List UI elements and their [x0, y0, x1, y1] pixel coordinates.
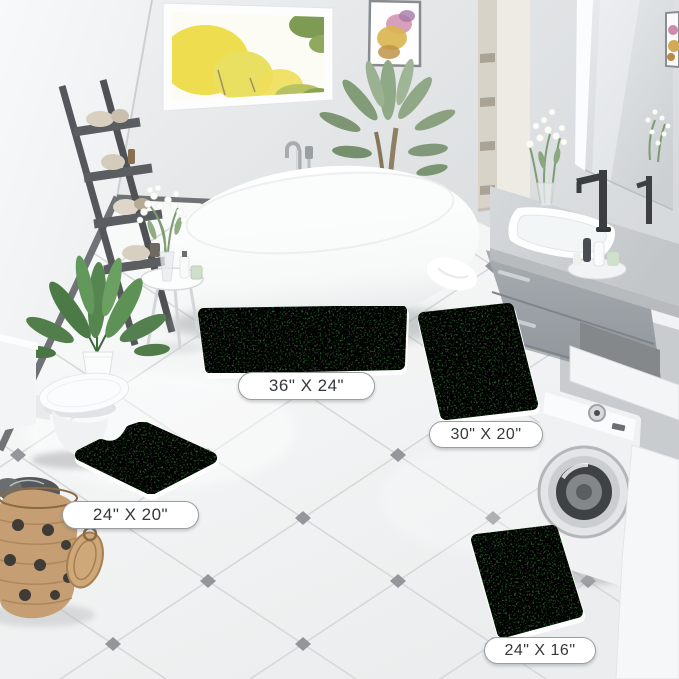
rug-36x24 [204, 311, 404, 376]
vase [160, 252, 174, 281]
size-label-24x20: 24" X 20" [62, 501, 199, 529]
bathroom-scene [0, 0, 679, 679]
rug-30x20 [424, 309, 534, 419]
wall-art-frame [369, 1, 420, 66]
bathroom-product-photo: 36" X 24" 30" X 20" 24" X 20" 24" X 16" [0, 0, 679, 679]
tall-cabinet [478, 0, 530, 212]
washer-door [539, 447, 629, 537]
size-label-24x16: 24" X 16" [484, 637, 596, 664]
rug-36x24-surface [204, 311, 401, 368]
rug-30x20-surface [424, 309, 532, 414]
hand-shower [305, 146, 313, 159]
size-label-30x20: 30" X 20" [429, 421, 543, 448]
window [161, 3, 335, 111]
size-label-36x24: 36" X 24" [238, 372, 375, 400]
toilet-tank [0, 340, 36, 431]
